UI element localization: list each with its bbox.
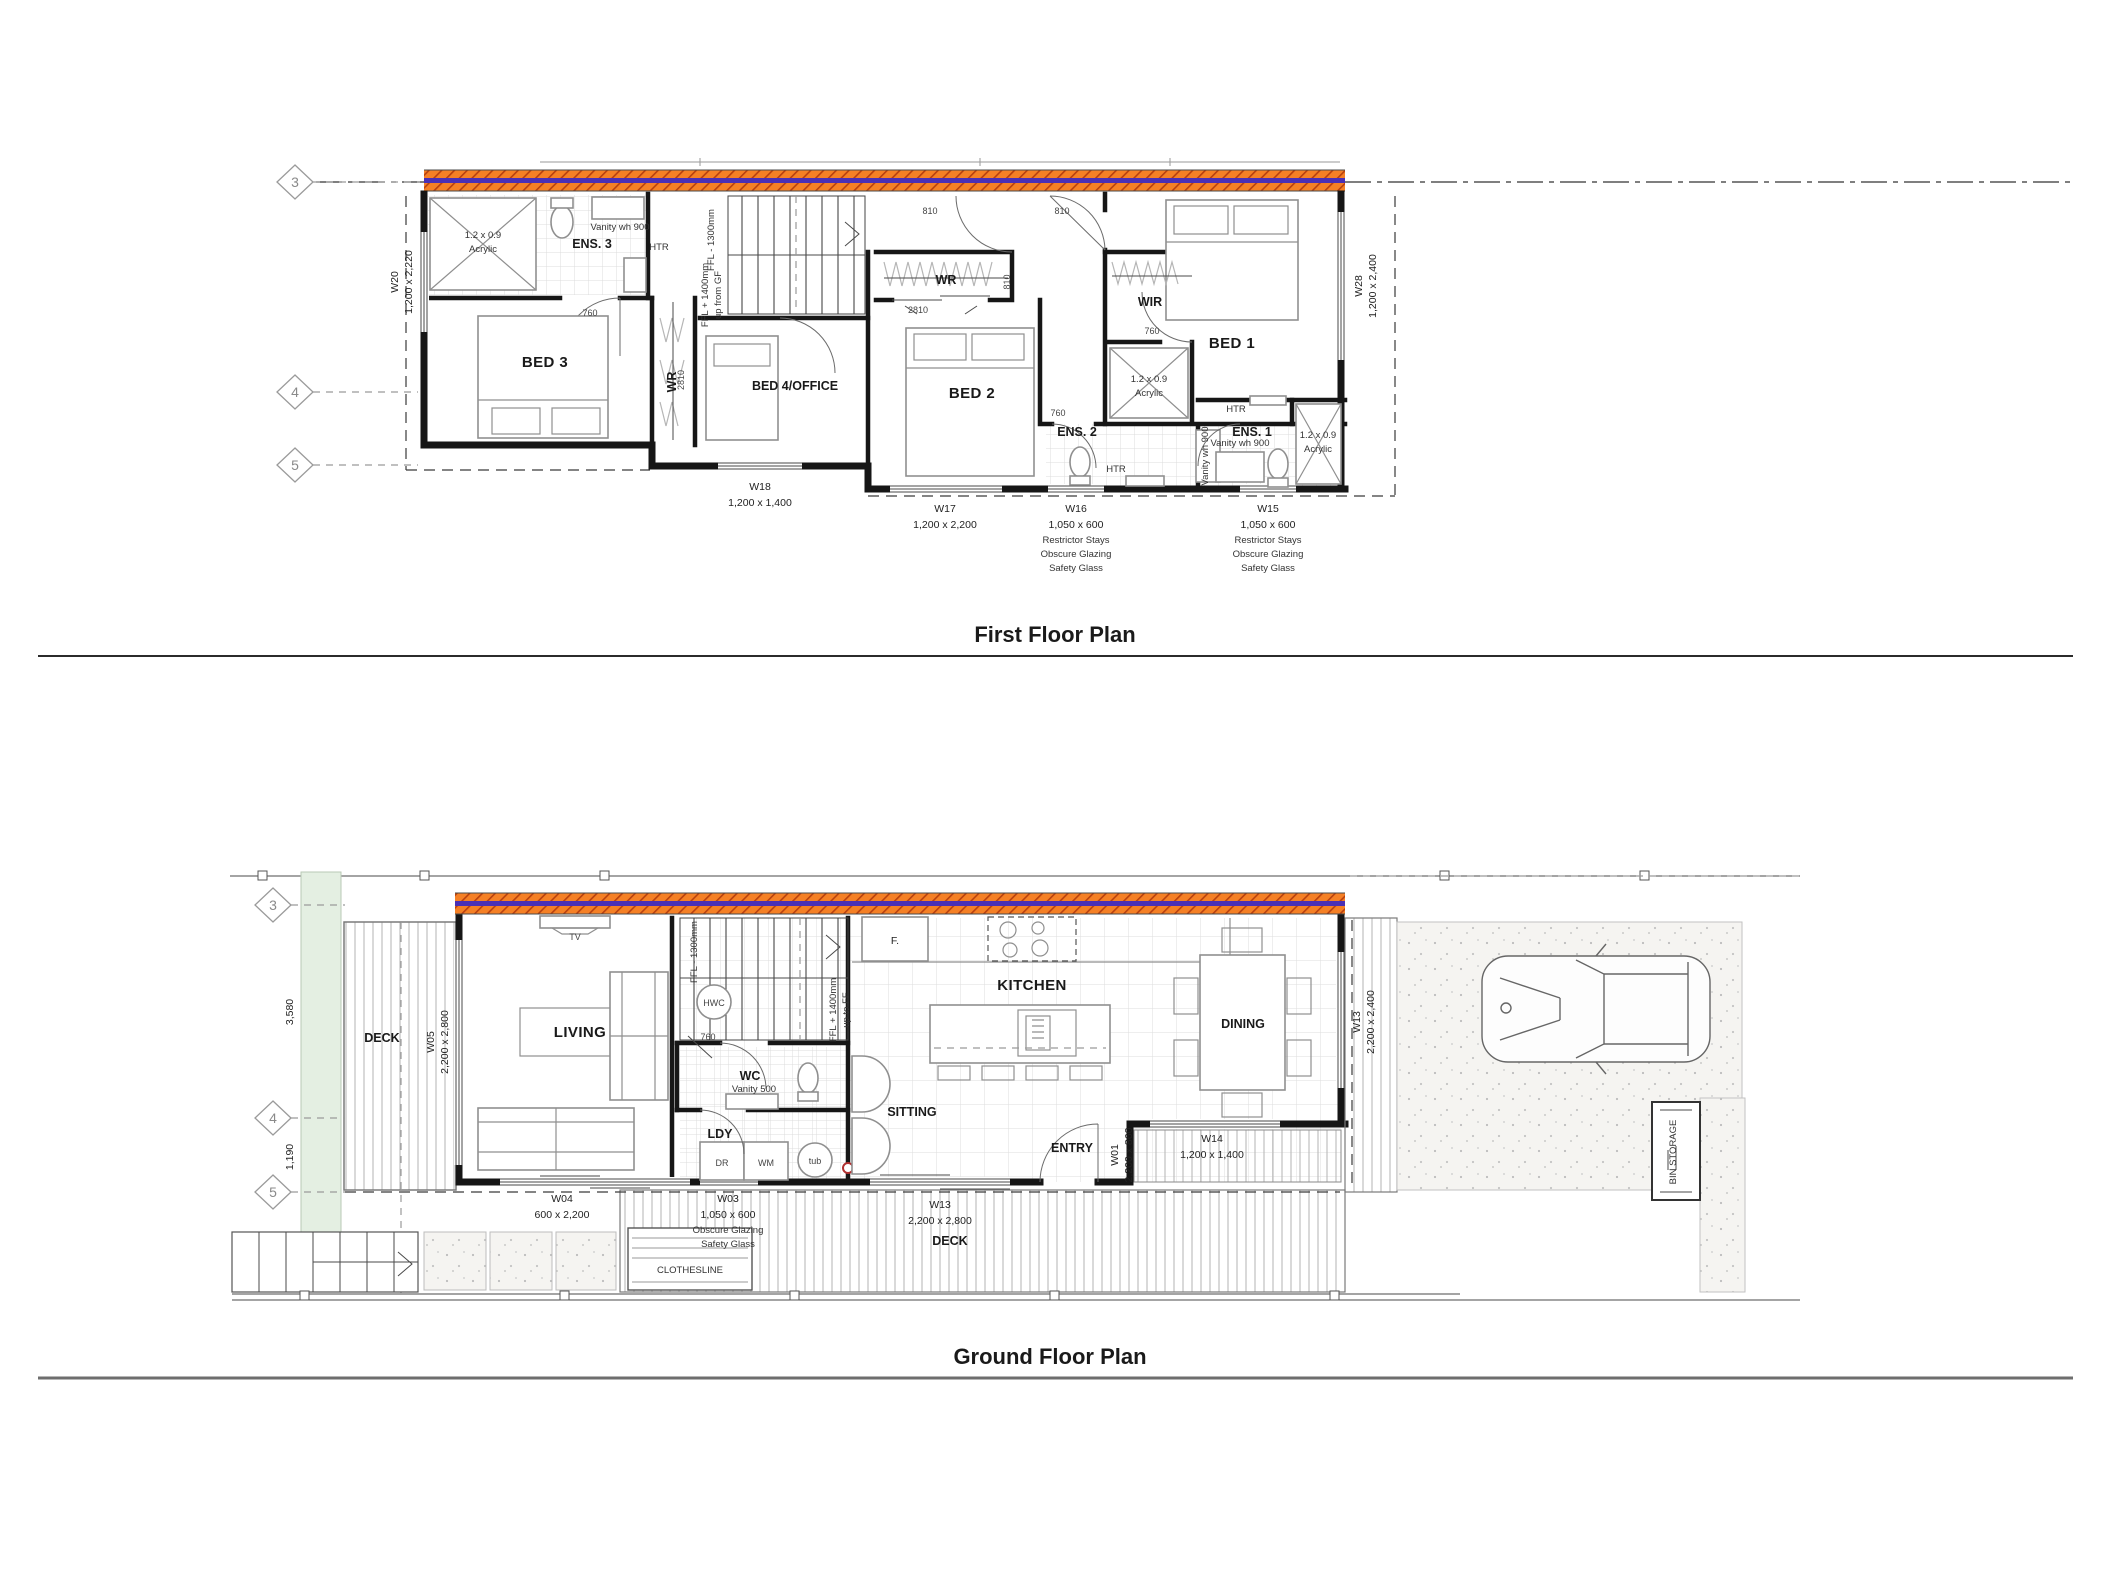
label-w15-note3: Safety Glass <box>1241 563 1295 574</box>
vanity-ens3 <box>592 197 644 219</box>
door-760: 760 <box>1050 408 1065 418</box>
label-clothesline: CLOTHESLINE <box>657 1265 723 1276</box>
grid-marker-5: 5 <box>269 1184 277 1200</box>
label-gf-ffl-up2: up to FF <box>841 992 852 1028</box>
grid-marker-4: 4 <box>291 384 299 400</box>
label-wc: WC <box>740 1069 761 1083</box>
label-htr-ens2: HTR <box>1106 464 1126 475</box>
label-w13e-size: 2,200 x 2,400 <box>1365 990 1377 1054</box>
ff-bed3 <box>478 316 608 438</box>
label-ens2: ENS. 2 <box>1057 425 1097 439</box>
vanity-ens1 <box>1216 452 1264 482</box>
label-ffl-up2: up from GF <box>713 271 724 319</box>
door-2810: 2810 <box>908 305 928 315</box>
window-w28 <box>1336 212 1346 360</box>
label-w28-id: W28 <box>1353 275 1365 297</box>
label-w14-size: 1,200 x 1,400 <box>1180 1149 1244 1161</box>
label-w15-id: W15 <box>1257 503 1279 515</box>
label-w01-size: 2,200 x 860 <box>1123 1127 1135 1182</box>
label-ffl-down: FFL - 1300mm <box>706 209 717 271</box>
label-shower-size-ens1: 1.2 x 0.9 <box>1300 430 1336 441</box>
grid-marker-3: 3 <box>291 174 299 190</box>
label-living: LIVING <box>554 1024 606 1041</box>
ff-wr-bed2 <box>884 262 1008 314</box>
label-wm: WM <box>758 1158 774 1168</box>
door-760: 760 <box>700 1032 715 1042</box>
door-810: 810 <box>1002 274 1012 289</box>
door-810: 810 <box>922 206 937 216</box>
label-wr-bed2: WR <box>936 273 957 287</box>
grid-marker-4: 4 <box>269 1110 277 1126</box>
gf-external-steps <box>232 1232 418 1292</box>
first-floor-title: First Floor Plan <box>974 622 1135 647</box>
label-w16-note1: Restrictor Stays <box>1042 535 1109 546</box>
label-w13s-id: W13 <box>929 1199 951 1211</box>
ground-floor-title: Ground Floor Plan <box>953 1344 1146 1369</box>
label-w18-size: 1,200 x 1,400 <box>728 497 792 509</box>
door-arc <box>1050 196 1105 250</box>
window-w18 <box>718 461 802 471</box>
label-fridge: F. <box>891 935 899 947</box>
label-bed2: BED 2 <box>949 385 995 402</box>
label-w03-note1: Obscure Glazing <box>693 1225 764 1236</box>
grid-marker-3: 3 <box>269 897 277 913</box>
label-vanity-ens1: Vanity wh 900 <box>1211 438 1270 449</box>
label-wir: WIR <box>1138 295 1162 309</box>
label-w15-note1: Restrictor Stays <box>1234 535 1301 546</box>
toilet-icon <box>1070 447 1090 485</box>
window-w14 <box>1150 1119 1280 1129</box>
label-vanity-ens2: Vanity wh 900 <box>1200 427 1211 486</box>
door-760: 760 <box>582 308 597 318</box>
label-deck-south: DECK <box>932 1234 967 1248</box>
window-w04 <box>500 1176 690 1188</box>
label-shower-size-ens2: 1.2 x 0.9 <box>1131 374 1167 385</box>
label-w16-id: W16 <box>1065 503 1087 515</box>
window-w13s <box>870 1175 1010 1189</box>
label-vanity-ens3: Vanity wh 900 <box>591 222 650 233</box>
label-dr: DR <box>716 1158 729 1168</box>
floor-plan-sheet: 3 4 5 ENS. 3 BED 3 BED 4/OFFICE BED 2 BE… <box>0 0 2111 1589</box>
label-w20-id: W20 <box>389 271 401 293</box>
ff-bed2 <box>906 196 1034 476</box>
label-ldy: LDY <box>708 1127 734 1141</box>
label-w03-size: 1,050 x 600 <box>701 1209 756 1221</box>
toilet-icon <box>551 198 573 238</box>
gf-party-wall <box>455 893 1345 914</box>
door-arc <box>956 196 1012 252</box>
label-w16-note2: Obscure Glazing <box>1041 549 1112 560</box>
label-ens1: ENS. 1 <box>1232 425 1272 439</box>
gf-concrete-pads <box>424 1232 616 1290</box>
label-entry: ENTRY <box>1051 1141 1094 1155</box>
label-htr-ens1: HTR <box>1226 404 1246 415</box>
label-bin-storage: BIN STORAGE <box>1668 1120 1679 1185</box>
label-w01-id: W01 <box>1109 1144 1121 1166</box>
label-w16-note3: Safety Glass <box>1049 563 1103 574</box>
label-gf-ffl-up1: FFL + 1400mm <box>828 978 839 1042</box>
label-w03-note2: Safety Glass <box>701 1239 755 1250</box>
heater-ens1 <box>1250 396 1286 405</box>
label-w05-size: 2,200 x 2,800 <box>439 1010 451 1074</box>
label-dining: DINING <box>1221 1017 1265 1031</box>
ground-floor-plan: 3 4 5 3,580 1,190 DECK LIVING WC LDY SIT… <box>38 871 2073 1378</box>
label-w15-size: 1,050 x 600 <box>1241 519 1296 531</box>
ff-stairs <box>728 196 865 314</box>
label-w17-id: W17 <box>934 503 956 515</box>
label-w20-size: 1,200 x 2,220 <box>403 250 415 314</box>
label-shower-size-ens3: 1.2 x 0.9 <box>465 230 501 241</box>
label-htr-ens3: HTR <box>649 242 669 253</box>
door-arc <box>780 318 835 373</box>
window-w17 <box>890 484 1002 494</box>
ff-party-wall <box>424 170 1345 191</box>
label-w14-id: W14 <box>1201 1133 1223 1145</box>
heater-ens3 <box>624 258 646 292</box>
toilet-icon <box>798 1063 818 1101</box>
dim-3580: 3,580 <box>284 999 296 1025</box>
label-shower-mat-ens3: Acrylic <box>469 244 497 255</box>
door-2810: 2810 <box>676 370 686 390</box>
tv-unit <box>540 916 610 928</box>
dim-1190: 1,190 <box>284 1144 296 1170</box>
label-w17-size: 1,200 x 2,200 <box>913 519 977 531</box>
label-bed1: BED 1 <box>1209 335 1255 352</box>
label-deck-west: DECK <box>364 1031 399 1045</box>
label-ffl-up1: FFL + 1400mm <box>700 263 711 327</box>
label-vanity-500: Vanity 500 <box>732 1084 776 1095</box>
label-tv: TV <box>569 932 581 942</box>
door-810: 810 <box>1054 206 1069 216</box>
plan-drawing: 3 4 5 ENS. 3 BED 3 BED 4/OFFICE BED 2 BE… <box>0 0 2111 1589</box>
label-w18-id: W18 <box>749 481 771 493</box>
gf-clothesline <box>628 1228 752 1290</box>
door-760: 760 <box>1144 326 1159 336</box>
window-w05 <box>454 940 464 1165</box>
label-bed4: BED 4/OFFICE <box>752 379 838 393</box>
planting-strip <box>301 872 341 1235</box>
car <box>1482 944 1710 1074</box>
label-ens3: ENS. 3 <box>572 237 612 251</box>
label-w15-note2: Obscure Glazing <box>1233 549 1304 560</box>
label-shower-mat-ens2: Acrylic <box>1135 388 1163 399</box>
label-w04-size: 600 x 2,200 <box>535 1209 590 1221</box>
label-kitchen: KITCHEN <box>997 977 1066 994</box>
toilet-icon <box>1268 449 1288 487</box>
label-w13e-id: W13 <box>1351 1011 1363 1033</box>
ff-grid-markers: 3 4 5 <box>277 165 420 482</box>
vanity-500 <box>726 1094 778 1109</box>
label-w04-id: W04 <box>551 1193 573 1205</box>
label-sitting: SITTING <box>887 1105 936 1119</box>
grid-marker-5: 5 <box>291 457 299 473</box>
label-w13s-size: 2,200 x 2,800 <box>908 1215 972 1227</box>
label-gf-ffl-down: FFL - 1300mm <box>689 921 700 983</box>
label-w16-size: 1,050 x 600 <box>1049 519 1104 531</box>
label-tub: tub <box>809 1156 822 1166</box>
label-w05-id: W05 <box>425 1031 437 1053</box>
label-bed3: BED 3 <box>522 354 568 371</box>
label-shower-mat-ens1: Acrylic <box>1304 444 1332 455</box>
ff-bed1 <box>1050 196 1298 320</box>
roof-line <box>540 158 1340 166</box>
first-floor-plan: 3 4 5 ENS. 3 BED 3 BED 4/OFFICE BED 2 BE… <box>38 158 2075 656</box>
heater-ens2 <box>1126 476 1164 486</box>
label-hwc: HWC <box>703 998 725 1008</box>
label-w28-size: 1,200 x 2,400 <box>1367 254 1379 318</box>
label-w03-id: W03 <box>717 1193 739 1205</box>
window-w20 <box>419 232 429 332</box>
